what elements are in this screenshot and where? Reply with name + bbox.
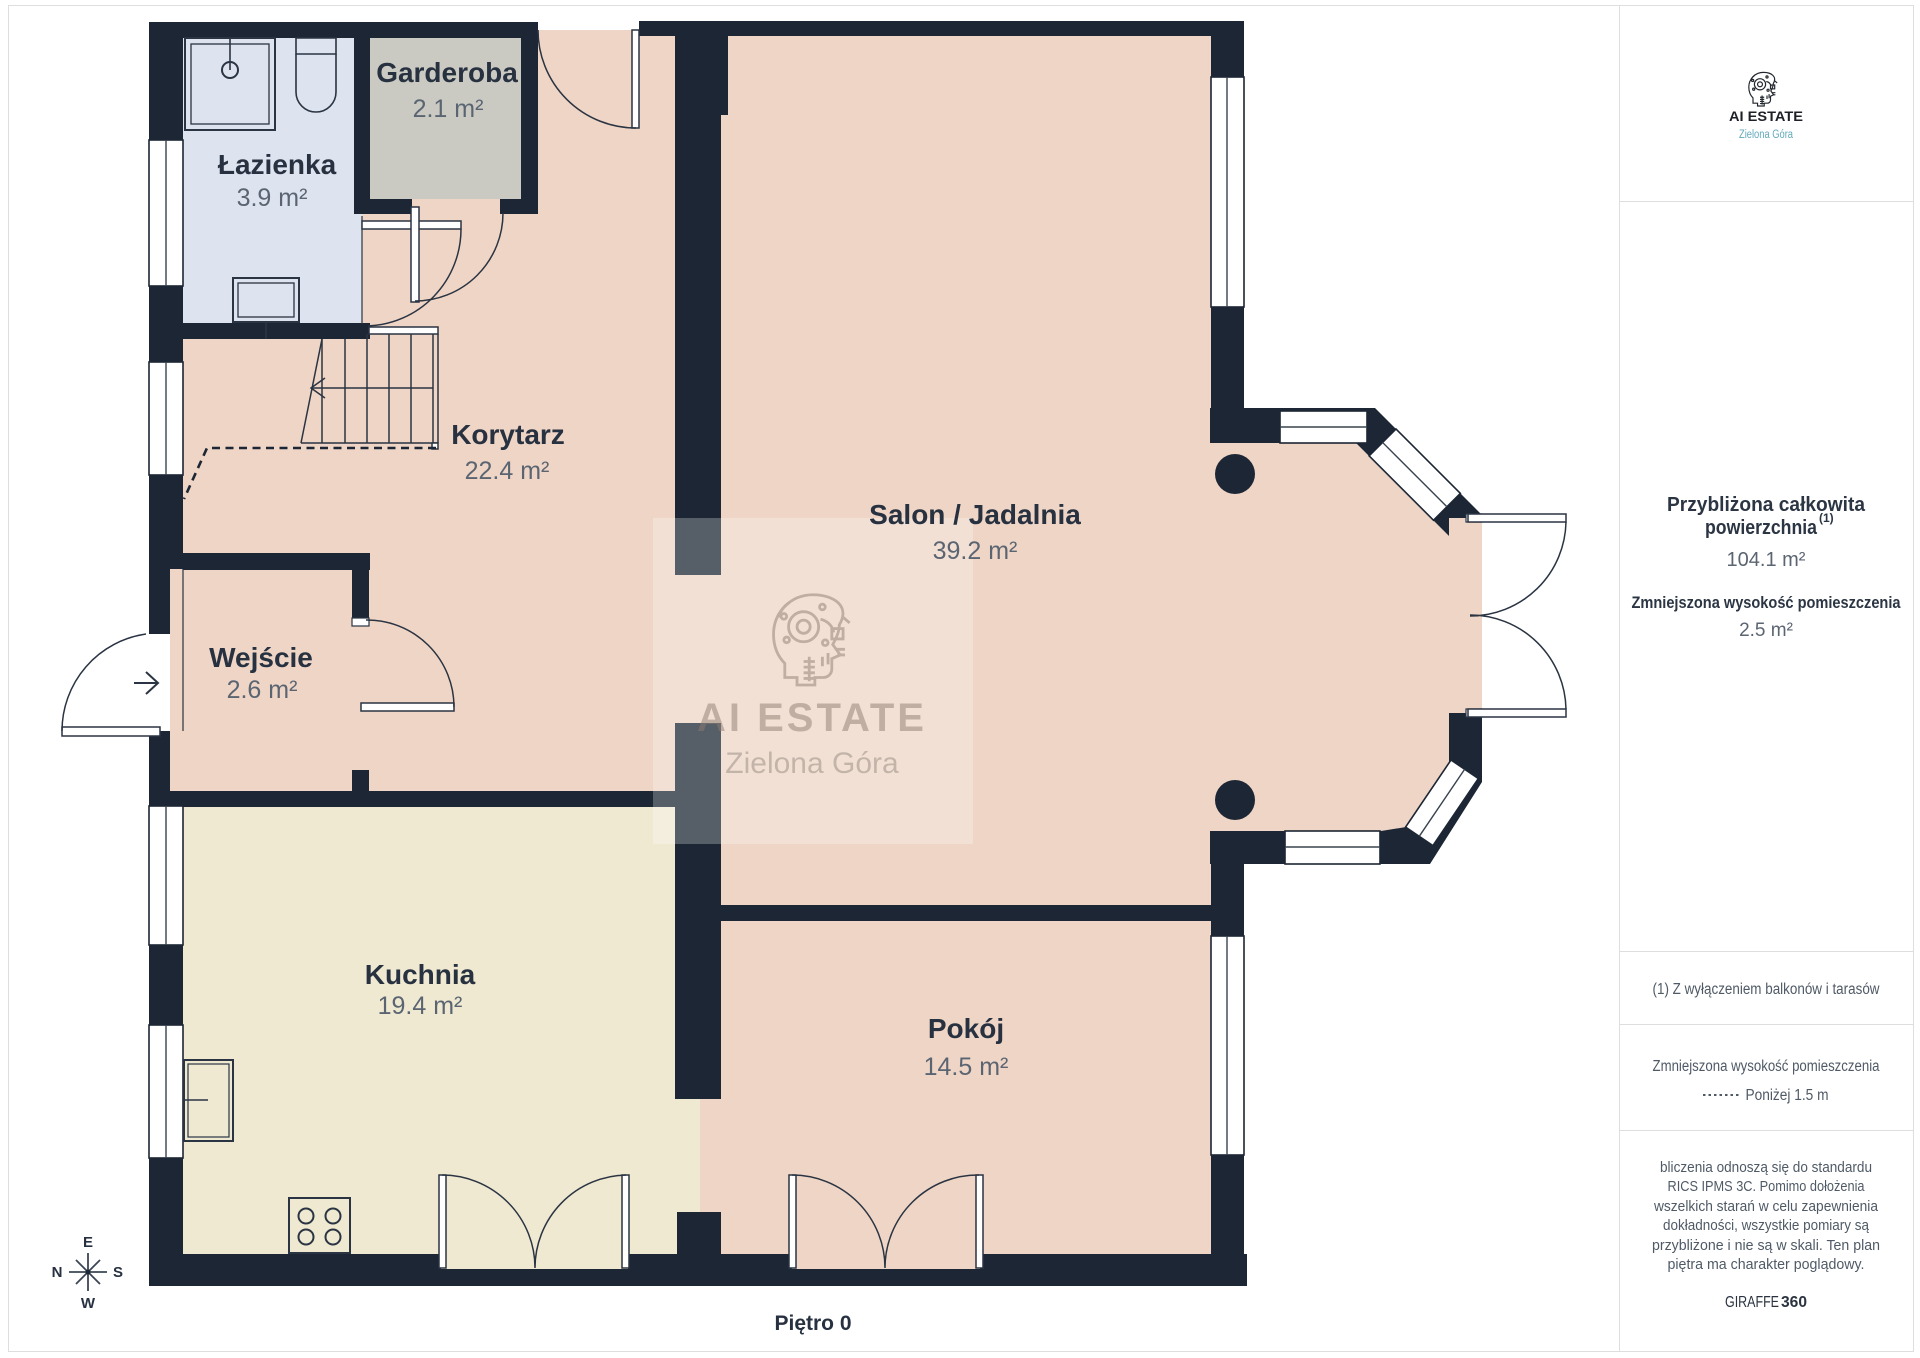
svg-text:2.1 m²: 2.1 m² xyxy=(413,95,484,123)
svg-text:AI ESTATE: AI ESTATE xyxy=(1729,108,1803,124)
svg-text:Garderoba: Garderoba xyxy=(376,57,518,88)
svg-text:(1) Z wyłączeniem balkonów i t: (1) Z wyłączeniem balkonów i tarasów xyxy=(1653,981,1881,998)
svg-text:(1): (1) xyxy=(1819,511,1834,525)
svg-text:N: N xyxy=(52,1264,63,1281)
svg-text:Zielona Góra: Zielona Góra xyxy=(1739,129,1793,141)
svg-text:S: S xyxy=(113,1264,123,1281)
svg-text:bliczenia odnoszą się do stand: bliczenia odnoszą się do standardu xyxy=(1660,1159,1872,1176)
svg-text:360: 360 xyxy=(1781,1294,1807,1311)
svg-text:Przybliżona całkowita: Przybliżona całkowita xyxy=(1667,494,1866,516)
svg-text:AI ESTATE: AI ESTATE xyxy=(697,696,927,740)
svg-text:3.9 m²: 3.9 m² xyxy=(237,184,308,212)
svg-text:RICS IPMS 3C. Pomimo dołożenia: RICS IPMS 3C. Pomimo dołożenia xyxy=(1668,1178,1866,1195)
svg-text:39.2 m²: 39.2 m² xyxy=(933,537,1018,565)
svg-text:wszelkich starań w celu zapewn: wszelkich starań w celu zapewnienia xyxy=(1653,1198,1879,1215)
svg-text:przybliżone i nie są w skali.: przybliżone i nie są w skali. Ten plan xyxy=(1652,1237,1880,1254)
svg-text:Poniżej 1.5 m: Poniżej 1.5 m xyxy=(1746,1087,1829,1104)
svg-text:E: E xyxy=(83,1234,93,1251)
svg-text:Pokój: Pokój xyxy=(928,1013,1004,1044)
svg-text:Korytarz: Korytarz xyxy=(451,419,565,450)
svg-text:2.5 m²: 2.5 m² xyxy=(1739,620,1793,641)
svg-text:19.4 m²: 19.4 m² xyxy=(378,992,463,1020)
svg-text:Zmniejszona wysokość pomieszcz: Zmniejszona wysokość pomieszczenia xyxy=(1632,593,1901,612)
svg-text:104.1 m²: 104.1 m² xyxy=(1727,549,1806,571)
svg-text:Zielona Góra: Zielona Góra xyxy=(725,747,899,780)
svg-text:22.4 m²: 22.4 m² xyxy=(465,457,550,485)
svg-text:Łazienka: Łazienka xyxy=(218,149,337,180)
svg-text:dokładności, wszystkie pomiary: dokładności, wszystkie pomiary są xyxy=(1663,1217,1870,1234)
svg-text:piętra ma charakter poglądowy.: piętra ma charakter poglądowy. xyxy=(1668,1256,1865,1273)
svg-text:Piętro 0: Piętro 0 xyxy=(774,1312,851,1335)
svg-text:2.6 m²: 2.6 m² xyxy=(227,676,298,704)
svg-text:W: W xyxy=(81,1295,96,1312)
svg-text:Kuchnia: Kuchnia xyxy=(365,959,476,990)
svg-text:Zmniejszona wysokość pomieszcz: Zmniejszona wysokość pomieszczenia xyxy=(1653,1058,1880,1075)
svg-text:14.5 m²: 14.5 m² xyxy=(924,1053,1009,1081)
svg-text:Salon / Jadalnia: Salon / Jadalnia xyxy=(869,499,1081,530)
svg-text:powierzchnia: powierzchnia xyxy=(1705,517,1818,539)
svg-text:Wejście: Wejście xyxy=(209,642,313,673)
svg-text:GIRAFFE: GIRAFFE xyxy=(1725,1294,1779,1311)
